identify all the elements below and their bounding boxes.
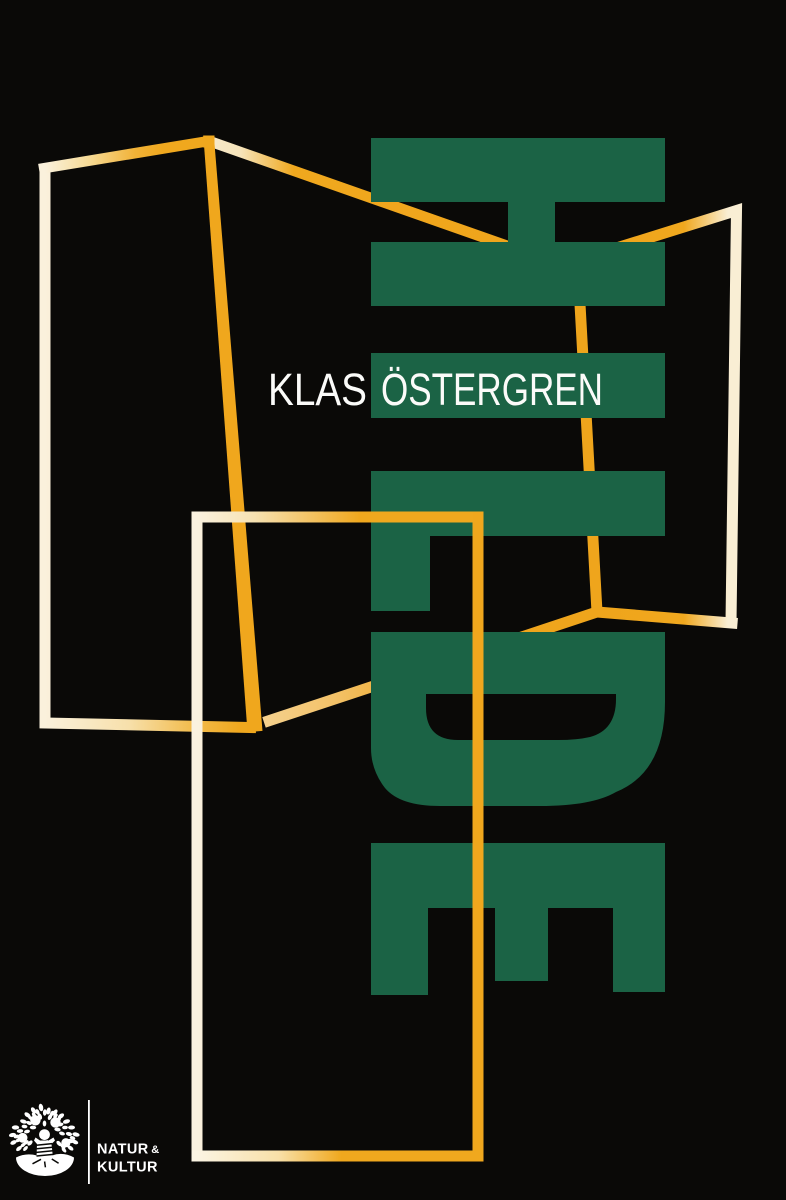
svg-text:KULTUR: KULTUR	[97, 1160, 158, 1176]
svg-text:KLAS: KLAS	[268, 364, 367, 415]
svg-text:ÖSTERGREN: ÖSTERGREN	[381, 364, 603, 415]
svg-text:NATUR &: NATUR &	[97, 1142, 160, 1158]
